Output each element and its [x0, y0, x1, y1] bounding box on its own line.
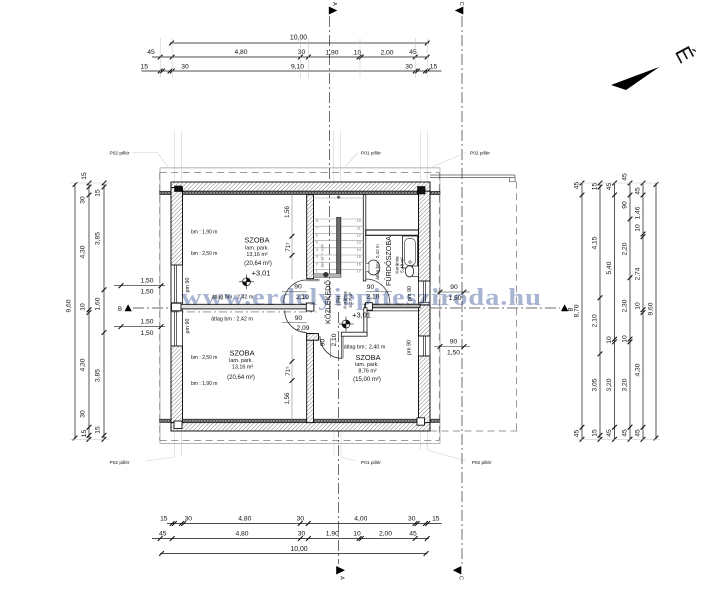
- svg-text:1,50: 1,50: [140, 330, 153, 337]
- svg-text:(15,00 m²): (15,00 m²): [353, 377, 381, 383]
- svg-text:2,30: 2,30: [622, 299, 629, 312]
- svg-text:15: 15: [357, 255, 361, 259]
- svg-text:4,80: 4,80: [235, 530, 248, 537]
- svg-text:P01 pillér: P01 pillér: [361, 151, 381, 157]
- svg-text:3,05: 3,05: [592, 378, 599, 391]
- svg-text:1,50: 1,50: [447, 349, 460, 356]
- svg-text:13,16 m²: 13,16 m²: [232, 364, 253, 370]
- svg-text:2,10: 2,10: [331, 333, 338, 346]
- svg-text:1,56: 1,56: [285, 206, 291, 218]
- svg-text:10,00: 10,00: [290, 546, 307, 553]
- svg-text:10: 10: [79, 303, 86, 311]
- svg-text:bm : 2,50 m: bm : 2,50 m: [191, 355, 217, 361]
- svg-text:3,20: 3,20: [606, 378, 613, 391]
- svg-text:1,90: 1,90: [325, 50, 338, 57]
- svg-text:P02 pillér: P02 pillér: [472, 460, 492, 466]
- svg-text:1,46: 1,46: [635, 206, 642, 219]
- svg-text:1: 1: [316, 270, 318, 274]
- svg-text:4,30: 4,30: [635, 363, 642, 376]
- svg-text:4,30: 4,30: [79, 358, 86, 371]
- svg-text:15: 15: [592, 183, 599, 191]
- svg-text:lam. park.: lam. park.: [355, 362, 379, 368]
- svg-text:+3,01: +3,01: [352, 311, 371, 320]
- svg-text:45: 45: [409, 530, 417, 537]
- svg-text:30: 30: [298, 530, 306, 537]
- svg-text:4,15: 4,15: [592, 236, 599, 249]
- svg-text:10,00: 10,00: [290, 35, 307, 42]
- svg-text:3: 3: [316, 255, 318, 259]
- svg-text:10: 10: [357, 219, 361, 223]
- svg-text:9,10: 9,10: [291, 64, 304, 71]
- svg-text:SZOBA: SZOBA: [229, 348, 254, 357]
- svg-text:(20,64 m²): (20,64 m²): [227, 375, 255, 381]
- svg-text:30: 30: [185, 515, 193, 522]
- svg-text:lam. park.: lam. park.: [229, 358, 253, 364]
- svg-text:10: 10: [635, 302, 642, 310]
- svg-text:45: 45: [635, 429, 642, 437]
- svg-text:pm 90: pm 90: [185, 319, 191, 334]
- svg-text:45: 45: [635, 187, 642, 195]
- svg-text:A: A: [339, 576, 345, 580]
- svg-text:átlag bm : 2,42 m: átlag bm : 2,42 m: [211, 317, 253, 323]
- svg-text:lam. park.: lam. park.: [245, 245, 269, 251]
- svg-text:30: 30: [408, 515, 416, 522]
- svg-text:17: 17: [357, 270, 361, 274]
- svg-text:13,16 m²: 13,16 m²: [246, 252, 267, 258]
- svg-text:3,85: 3,85: [94, 369, 101, 382]
- svg-text:2,00: 2,00: [379, 530, 392, 537]
- svg-text:bm : 1,90 m: bm : 1,90 m: [191, 229, 217, 235]
- svg-text:10: 10: [353, 530, 361, 537]
- svg-text:15: 15: [94, 189, 101, 197]
- svg-text:45: 45: [622, 429, 629, 437]
- svg-text:2,74: 2,74: [635, 267, 642, 280]
- svg-text:4,00: 4,00: [354, 515, 367, 522]
- svg-text:90: 90: [319, 339, 326, 347]
- svg-text:A: A: [331, 2, 337, 6]
- svg-text:2,00: 2,00: [380, 50, 393, 57]
- svg-text:5,48 m²: 5,48 m²: [400, 257, 405, 273]
- svg-text:P02 pillér: P02 pillér: [110, 151, 130, 157]
- svg-text:14: 14: [357, 248, 361, 252]
- svg-text:10: 10: [606, 336, 613, 344]
- svg-text:3,20: 3,20: [622, 378, 629, 391]
- svg-text:90: 90: [450, 338, 458, 345]
- svg-text:2,10: 2,10: [592, 314, 599, 327]
- svg-text:5,40: 5,40: [606, 261, 613, 274]
- svg-text:2,09: 2,09: [296, 325, 309, 332]
- svg-text:átlag bm : 2,42 m: átlag bm : 2,42 m: [375, 244, 380, 280]
- svg-text:45: 45: [606, 429, 613, 437]
- svg-text:3,85: 3,85: [94, 232, 101, 245]
- svg-text:2: 2: [316, 262, 318, 266]
- svg-text:bm : 1,90 m: bm : 1,90 m: [191, 381, 217, 387]
- svg-text:90: 90: [295, 315, 303, 322]
- svg-text:45: 45: [574, 430, 581, 438]
- svg-text:15: 15: [140, 64, 148, 71]
- svg-text:16: 16: [357, 262, 361, 266]
- svg-text:90: 90: [622, 201, 629, 209]
- svg-text:1,90: 1,90: [326, 530, 339, 537]
- svg-text:11: 11: [357, 226, 361, 230]
- svg-text:5: 5: [316, 241, 318, 245]
- svg-text:9,60: 9,60: [648, 302, 655, 315]
- svg-text:13: 13: [357, 241, 361, 245]
- svg-text:10: 10: [354, 50, 362, 57]
- svg-text:45: 45: [574, 182, 581, 190]
- svg-text:C: C: [458, 2, 464, 6]
- svg-text:30: 30: [79, 410, 86, 418]
- svg-text:SZOBA: SZOBA: [244, 236, 269, 245]
- svg-text:4,80: 4,80: [234, 49, 247, 56]
- svg-text:45: 45: [409, 49, 417, 56]
- svg-text:15: 15: [94, 426, 101, 434]
- svg-text:15: 15: [592, 429, 599, 437]
- svg-text:10: 10: [635, 224, 642, 232]
- svg-text:bm : 2,50 m: bm : 2,50 m: [191, 251, 217, 257]
- svg-text:15: 15: [160, 515, 168, 522]
- svg-text:45: 45: [606, 183, 613, 191]
- svg-text:1,50: 1,50: [140, 278, 153, 285]
- svg-text:30: 30: [79, 196, 86, 204]
- svg-text:8: 8: [316, 219, 318, 223]
- svg-text:FÜRDŐSZOBA: FÜRDŐSZOBA: [384, 236, 393, 286]
- svg-text:8,70: 8,70: [574, 304, 581, 317]
- svg-text:12: 12: [357, 234, 361, 238]
- svg-text:45: 45: [159, 530, 167, 537]
- svg-text:30: 30: [297, 515, 305, 522]
- svg-text:15: 15: [81, 172, 88, 180]
- svg-text:pm 90: pm 90: [407, 340, 413, 355]
- svg-text:(20,64 m²): (20,64 m²): [244, 261, 272, 267]
- svg-text:P02 pillér: P02 pillér: [110, 460, 130, 466]
- svg-text:4: 4: [316, 248, 318, 252]
- svg-text:30: 30: [405, 64, 413, 71]
- svg-text:C: C: [458, 576, 464, 580]
- svg-text:átlag bm.: 2,40 m: átlag bm.: 2,40 m: [344, 344, 386, 350]
- svg-text:4,80: 4,80: [238, 515, 251, 522]
- svg-text:B: B: [118, 307, 122, 313]
- svg-text:2,20: 2,20: [622, 242, 629, 255]
- svg-text:+3,01: +3,01: [252, 268, 271, 277]
- svg-text:6: 6: [316, 234, 318, 238]
- svg-text:45: 45: [622, 173, 629, 181]
- svg-text:P02 pillér: P02 pillér: [470, 151, 490, 157]
- svg-text:15: 15: [81, 430, 88, 438]
- svg-text:30: 30: [298, 49, 306, 56]
- svg-text:P01 pillér: P01 pillér: [361, 460, 381, 466]
- svg-text:8,76 m²: 8,76 m²: [358, 368, 376, 374]
- svg-text:9,60: 9,60: [66, 299, 73, 312]
- svg-text:1,60: 1,60: [94, 297, 101, 310]
- svg-text:15: 15: [432, 515, 440, 522]
- svg-text:18x 16⁷ = 3,00: 18x 16⁷ = 3,00: [320, 244, 324, 267]
- svg-text:1,50: 1,50: [140, 319, 153, 326]
- svg-text:SZOBA: SZOBA: [355, 353, 380, 362]
- svg-text:10: 10: [622, 335, 629, 343]
- svg-text:1,56: 1,56: [285, 392, 291, 404]
- svg-text:4,30: 4,30: [79, 245, 86, 258]
- svg-text:71⁵: 71⁵: [285, 242, 292, 252]
- svg-text:15: 15: [430, 64, 438, 71]
- svg-text:71⁵: 71⁵: [285, 366, 292, 376]
- svg-text:1,50: 1,50: [140, 289, 153, 296]
- svg-text:7: 7: [316, 226, 318, 230]
- svg-text:45: 45: [147, 49, 155, 56]
- svg-text:30: 30: [181, 64, 189, 71]
